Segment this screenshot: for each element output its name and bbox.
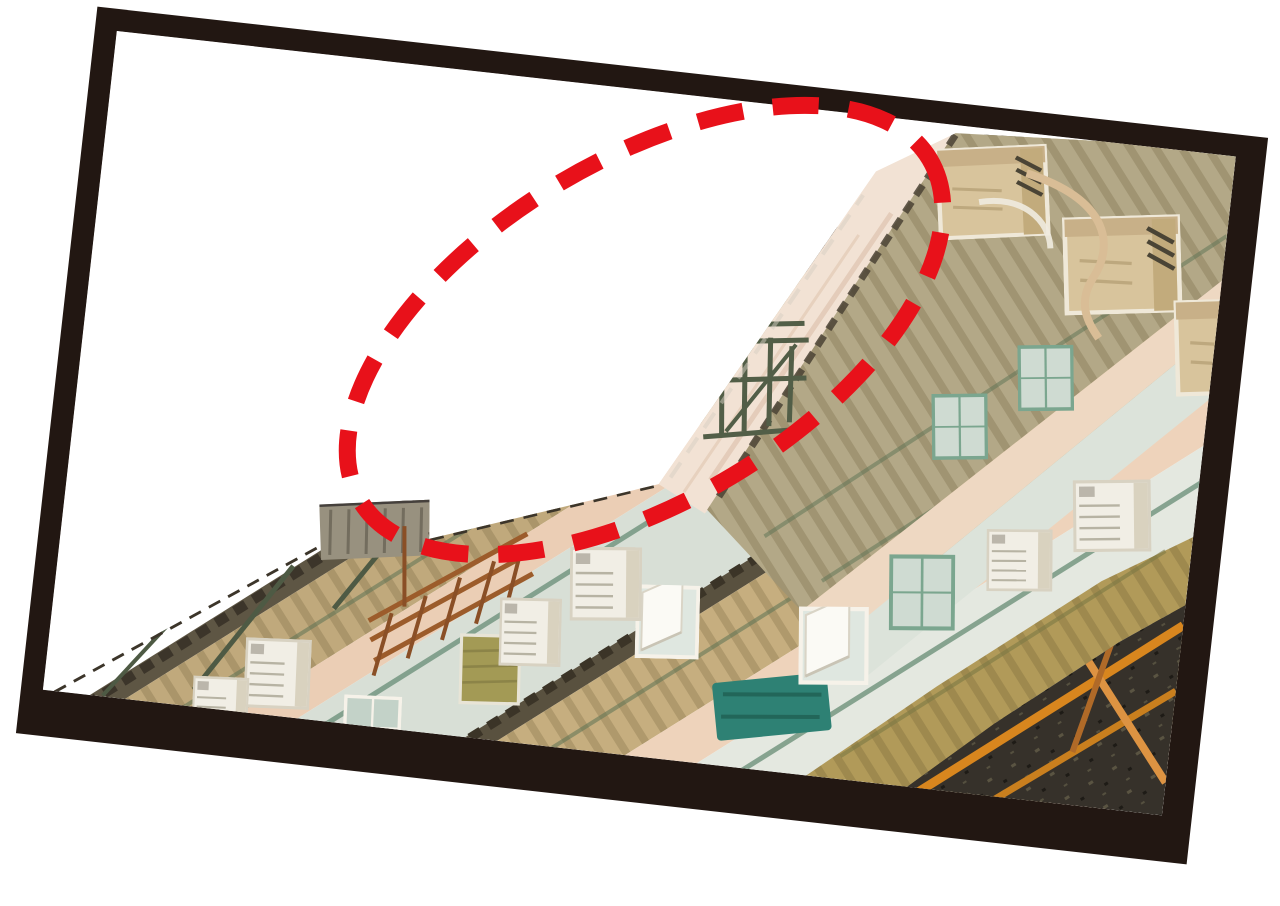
air-conditioner	[988, 530, 1052, 590]
photo-frame	[16, 7, 1268, 865]
window	[343, 696, 400, 759]
window	[800, 595, 866, 683]
air-conditioner	[192, 677, 248, 737]
rooftop-air-conditioner	[1176, 299, 1236, 394]
window	[891, 556, 954, 628]
window	[1019, 347, 1072, 410]
air-conditioner	[245, 639, 311, 709]
window	[637, 574, 699, 658]
air-conditioner	[571, 548, 641, 619]
window	[933, 395, 986, 458]
rooftop-air-conditioner	[937, 146, 1048, 239]
page	[0, 0, 1280, 906]
air-conditioner	[1074, 481, 1150, 551]
air-conditioner	[500, 599, 561, 666]
building-photo	[43, 31, 1236, 815]
